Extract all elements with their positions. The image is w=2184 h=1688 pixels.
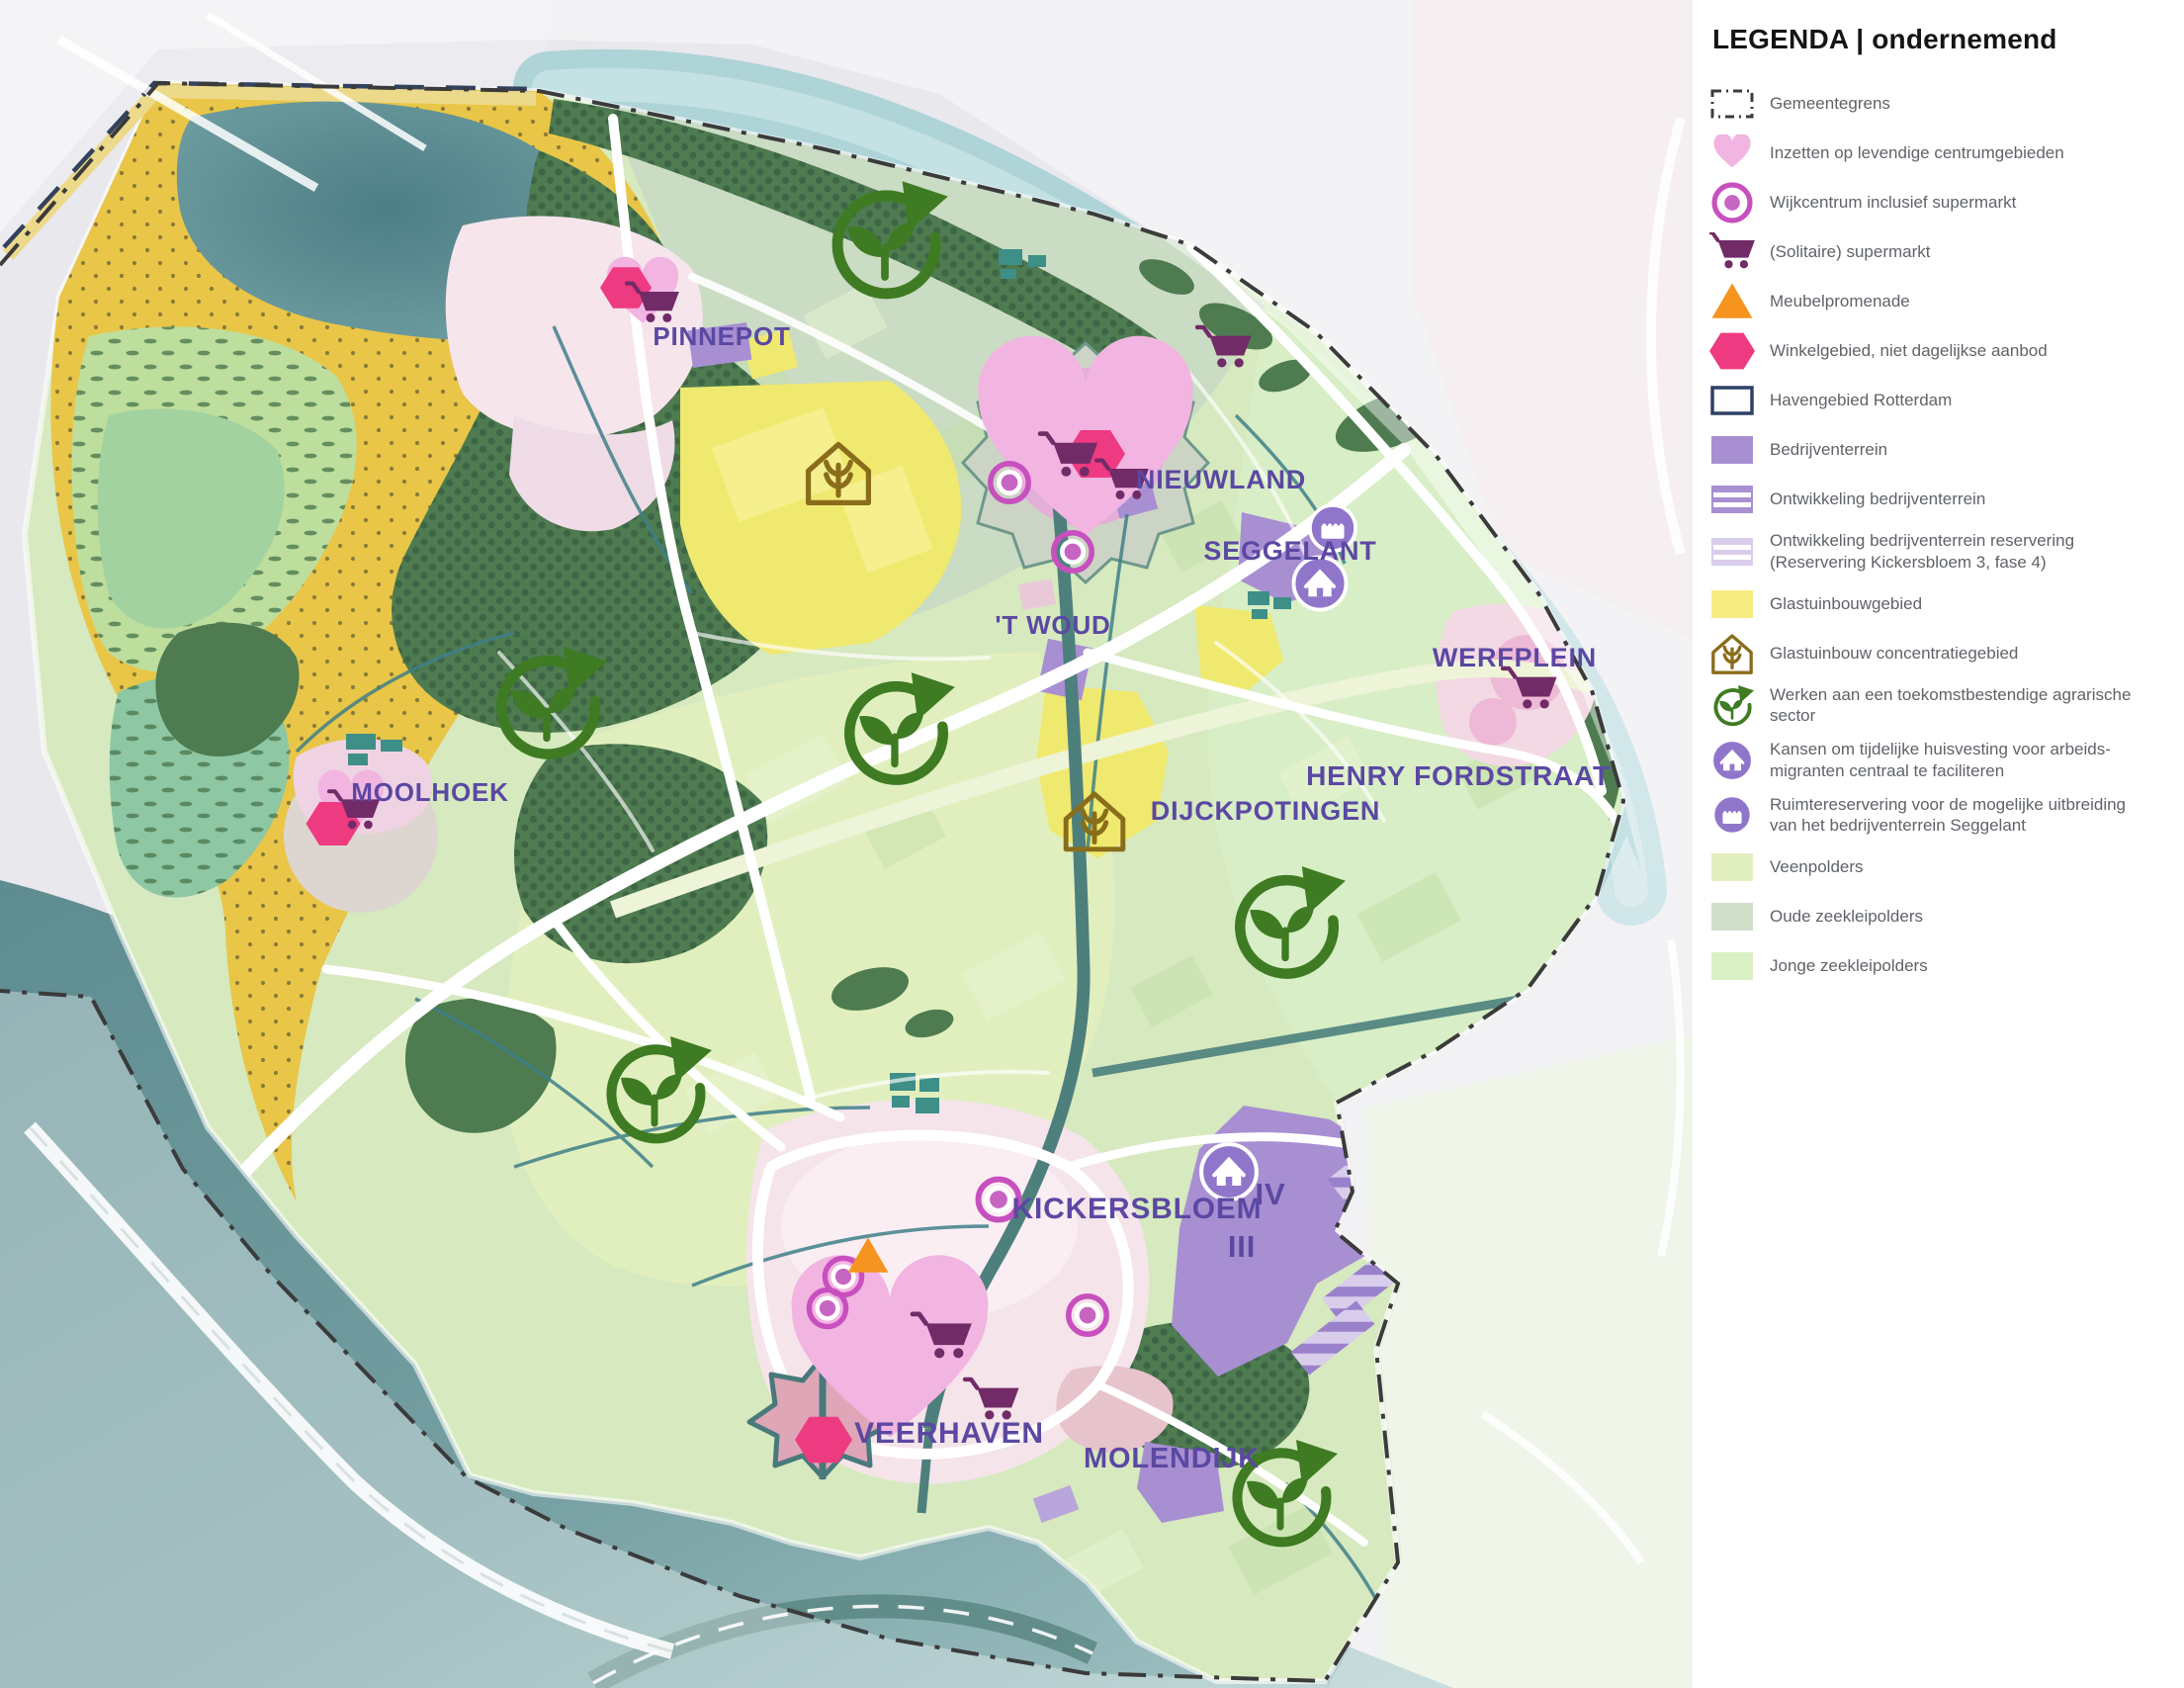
legend-item-agrarische-sector: Werken aan een toekomstbestendige agrari…: [1708, 684, 2176, 728]
map-label-pinnepot: PINNEPOT: [653, 321, 790, 351]
legend-item-meubelpromenade: Meubelpromenade: [1708, 283, 2176, 320]
house-circle-icon: [1708, 742, 1756, 779]
legend-item-bedrijventerrein: Bedrijventerrein: [1708, 431, 2176, 469]
map-label-veerhaven: VEERHAVEN: [854, 1417, 1044, 1450]
oude-swatch-icon: [1708, 898, 1756, 935]
map-label-werfplein: WERFPLEIN: [1433, 643, 1597, 672]
legend-item-veenpolders: Veenpolders: [1708, 848, 2176, 886]
legend-item-centrumgebieden: Inzetten op levendige centrumgebieden: [1708, 134, 2176, 172]
legend-panel: LEGENDA | ondernemend Gemeentegrens Inze…: [1693, 0, 2184, 1688]
legend-item-havengebied: Havengebied Rotterdam: [1708, 382, 2176, 419]
jonge-swatch-icon: [1708, 947, 1756, 985]
striped-light-swatch-icon: [1708, 533, 1756, 571]
hexagon-icon: [1708, 332, 1756, 370]
map-label-dijckpotingen: DIJCKPOTINGEN: [1151, 796, 1380, 826]
legend-item-winkelgebied: Winkelgebied, niet dagelijkse aanbod: [1708, 332, 2176, 370]
legend-item-ontwikkeling: Ontwikkeling bedrijventerrein: [1708, 481, 2176, 518]
purple-swatch-icon: [1708, 431, 1756, 469]
cycle-icon: [1708, 686, 1756, 724]
legend-item-ruimtereservering: Ruimtereservering voor de mogelijke uitb…: [1708, 794, 2176, 838]
map-label-seggelant: SEGGELANT: [1203, 536, 1376, 566]
house-icon: [1201, 1144, 1257, 1199]
legend-item-reservering: Ontwikkeling bedrijventerrein reserverin…: [1708, 530, 2176, 574]
map-label-kickersbloem: KICKERSBLOEM: [1012, 1193, 1263, 1225]
map-label-t-woud: 'T WOUD: [995, 610, 1110, 640]
heart-icon: [1708, 134, 1756, 172]
legend-item-glastuinbouwgebied: Glastuinbouwgebied: [1708, 585, 2176, 623]
legend-title: LEGENDA | ondernemend: [1712, 24, 2176, 55]
map-page: { "legend": { "title": "LEGENDA | ondern…: [0, 0, 2184, 1688]
triangle-icon: [1708, 283, 1756, 320]
legend-item-jonge-zeekleipolders: Jonge zeekleipolders: [1708, 947, 2176, 985]
veen-swatch-icon: [1708, 848, 1756, 886]
legend-item-gemeentegrens: Gemeentegrens: [1708, 85, 2176, 123]
boundary-swatch-icon: [1708, 85, 1756, 123]
map-label-nieuwland: NIEUWLAND: [1136, 465, 1306, 494]
legend-item-oude-zeekleipolders: Oude zeekleipolders: [1708, 898, 2176, 935]
factory-circle-icon: [1708, 796, 1756, 834]
map-label-kickersbloem-iii: III: [1228, 1229, 1256, 1264]
legend-item-glastuinbouw-concentratie: Glastuinbouw concentratiegebied: [1708, 635, 2176, 672]
legend-item-huisvesting: Kansen om tijdelijke huisvesting voor ar…: [1708, 739, 2176, 782]
cart-icon: [1708, 233, 1756, 271]
yellow-swatch-icon: [1708, 585, 1756, 623]
striped-purple-swatch-icon: [1708, 481, 1756, 518]
map-label-molendijk: MOLENDIJK: [1084, 1443, 1260, 1474]
map-label-henry-fordstraat: HENRY FORDSTRAAT: [1306, 760, 1611, 791]
legend-item-supermarkt: (Solitaire) supermarkt: [1708, 233, 2176, 271]
legend-item-wijkcentrum: Wijkcentrum inclusief supermarkt: [1708, 184, 2176, 222]
ring-icon: [1708, 184, 1756, 222]
map-label-kickersbloem-iv: IV: [1256, 1177, 1286, 1211]
map-label-moolhoek: MOOLHOEK: [351, 777, 509, 807]
harbor-swatch-icon: [1708, 382, 1756, 419]
greenhouse-icon: [1708, 635, 1756, 672]
